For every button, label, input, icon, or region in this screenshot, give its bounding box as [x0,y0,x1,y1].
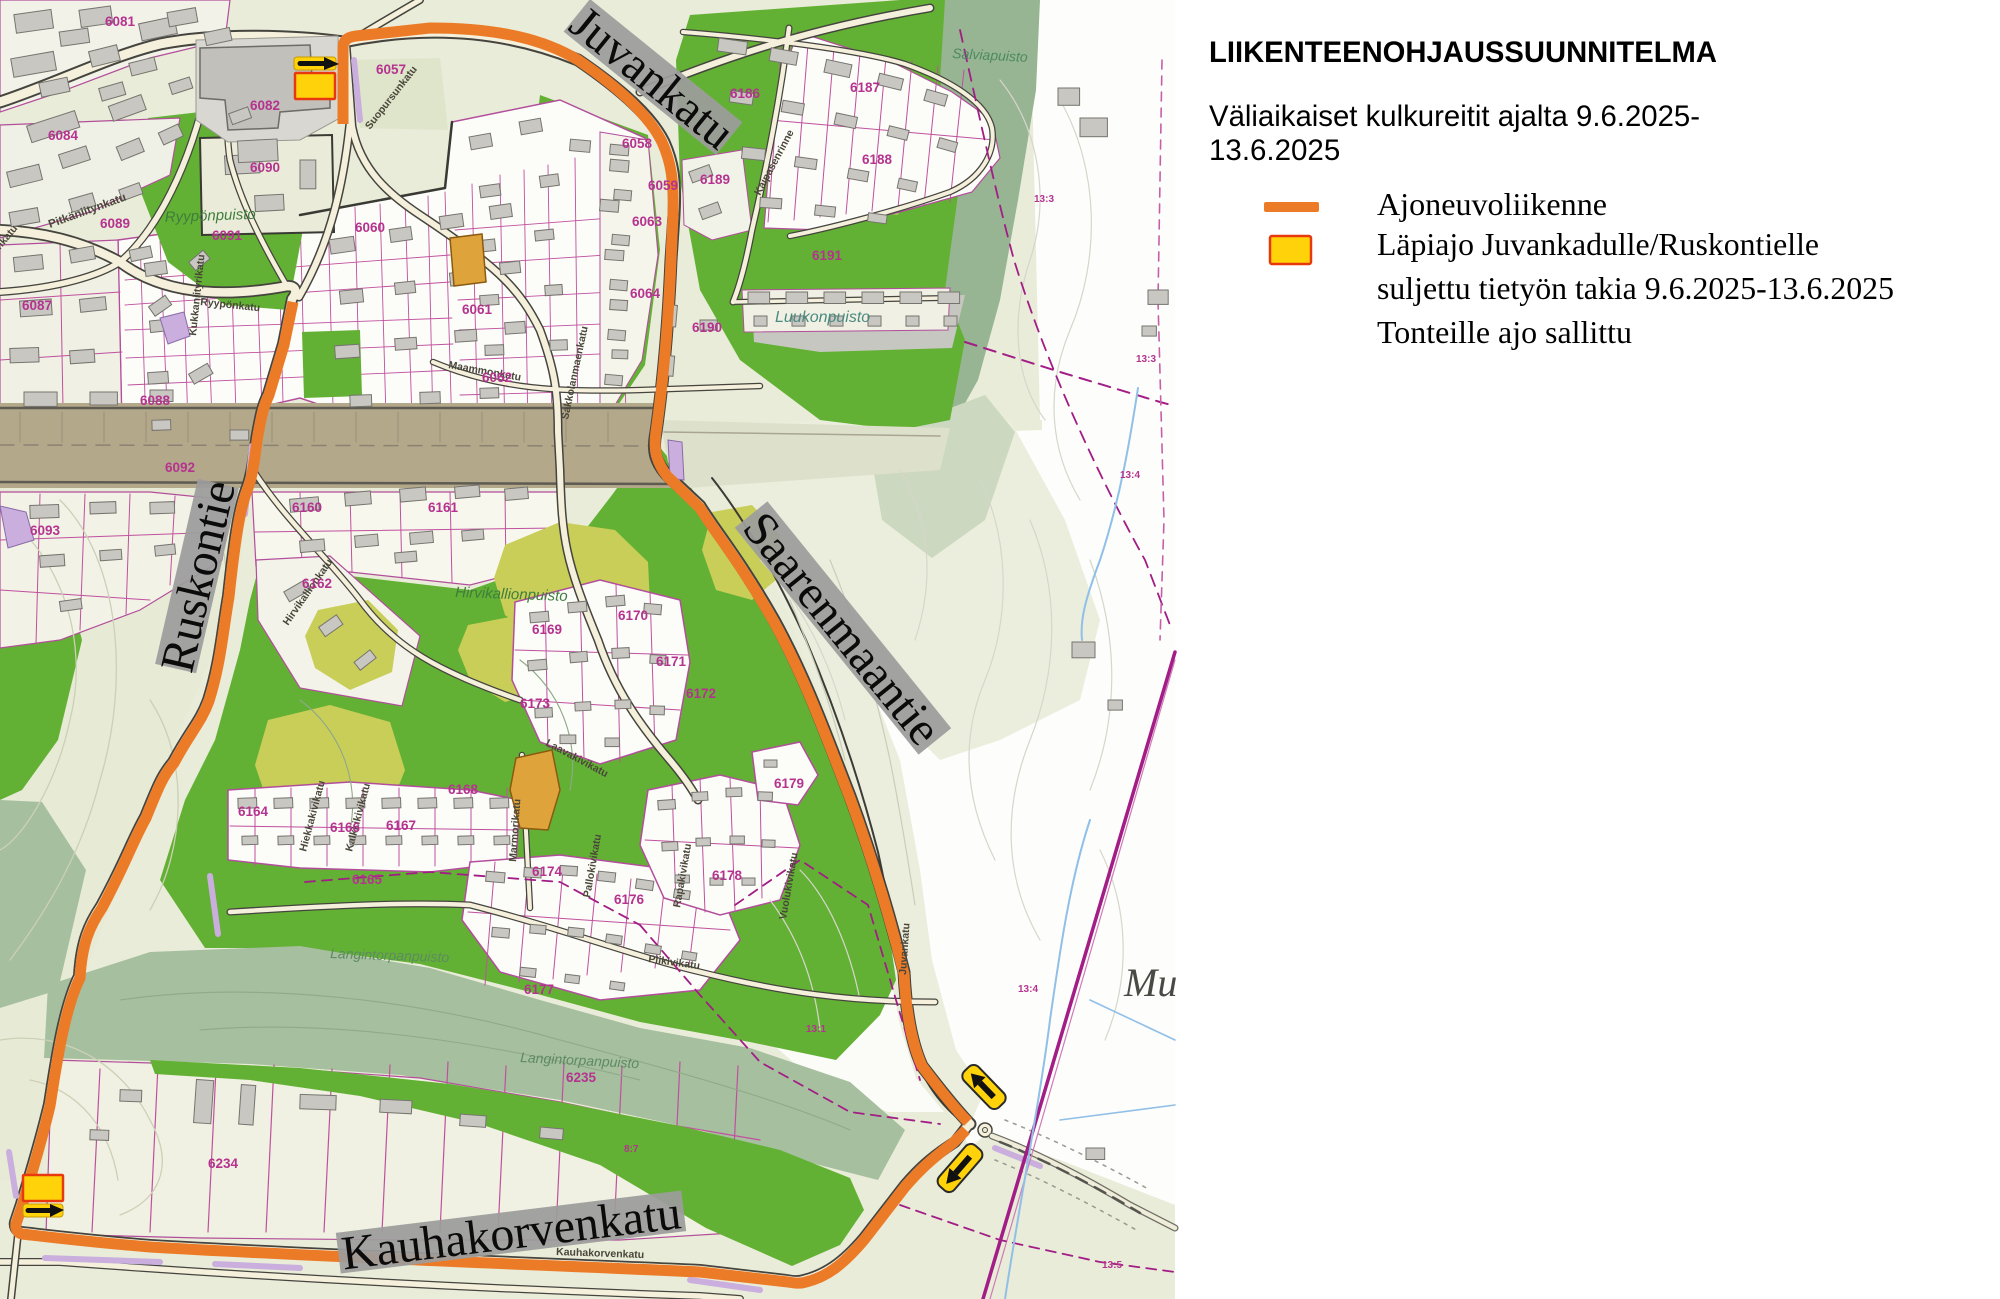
svg-text:6057: 6057 [376,62,406,77]
svg-text:6092: 6092 [165,460,195,475]
svg-text:6235: 6235 [566,1070,597,1085]
svg-text:13:1: 13:1 [806,1024,826,1035]
svg-text:6064: 6064 [630,286,661,301]
svg-text:6087: 6087 [22,298,52,313]
svg-text:Ryypönpuisto: Ryypönpuisto [165,206,256,226]
svg-text:Ajoneuvoliikenne: Ajoneuvoliikenne [1377,186,1607,222]
svg-text:6058: 6058 [622,136,653,151]
svg-text:6168: 6168 [448,782,479,797]
svg-text:6166: 6166 [330,820,361,835]
svg-text:Mu: Mu [1123,960,1177,1005]
svg-text:6088: 6088 [140,393,171,408]
svg-text:6171: 6171 [656,654,687,669]
svg-text:6176: 6176 [614,892,645,907]
svg-text:6162: 6162 [302,576,332,591]
svg-text:Läpiajo Juvankadulle/Ruskontie: Läpiajo Juvankadulle/Ruskontielle [1377,226,1819,262]
svg-text:13:3: 13:3 [1034,194,1054,205]
svg-text:Väliaikaiset kulkureitit ajalt: Väliaikaiset kulkureitit ajalta 9.6.2025… [1209,100,1700,133]
svg-text:6091: 6091 [212,228,243,243]
svg-text:6164: 6164 [238,804,269,819]
svg-text:6172: 6172 [686,686,716,701]
svg-text:6059: 6059 [648,178,678,193]
svg-text:6093: 6093 [30,523,61,538]
svg-text:13:4: 13:4 [1120,470,1140,481]
svg-text:6167: 6167 [386,818,416,833]
svg-text:6177: 6177 [524,982,554,997]
svg-text:13:3: 13:3 [1136,354,1156,365]
svg-text:6082: 6082 [250,98,280,113]
svg-text:6061: 6061 [462,302,493,317]
svg-text:6186: 6186 [730,86,761,101]
svg-text:6161: 6161 [428,500,459,515]
svg-text:6169: 6169 [532,622,562,637]
svg-text:6189: 6189 [700,172,730,187]
svg-text:6090: 6090 [250,160,280,175]
svg-text:13:5: 13:5 [1102,1260,1122,1271]
svg-text:suljettu tietyön takia 9.6.202: suljettu tietyön takia 9.6.2025-13.6.202… [1377,270,1894,306]
svg-text:6081: 6081 [105,14,136,29]
svg-text:6173: 6173 [520,696,551,711]
svg-text:6187: 6187 [850,80,880,95]
svg-text:13:4: 13:4 [1018,984,1038,995]
svg-text:6178: 6178 [712,868,743,883]
svg-text:6165: 6165 [352,872,383,887]
svg-text:6089: 6089 [100,216,130,231]
svg-text:6084: 6084 [48,128,79,143]
svg-text:6191: 6191 [812,248,843,263]
svg-text:6234: 6234 [208,1156,239,1171]
svg-text:6160: 6160 [292,500,322,515]
svg-text:6174: 6174 [532,864,563,879]
svg-text:13.6.2025: 13.6.2025 [1209,134,1340,167]
svg-text:6060: 6060 [355,220,385,235]
svg-text:6190: 6190 [692,320,722,335]
svg-text:6188: 6188 [862,152,893,167]
svg-text:6170: 6170 [618,608,648,623]
svg-text:Luukonpuisto: Luukonpuisto [775,309,870,326]
svg-text:6062: 6062 [482,370,512,385]
svg-text:8:7: 8:7 [624,1144,639,1155]
svg-text:Tonteille ajo sallittu: Tonteille ajo sallittu [1377,314,1632,350]
svg-text:LIIKENTEENOHJAUSSUUNNITELMA: LIIKENTEENOHJAUSSUUNNITELMA [1209,36,1717,69]
svg-text:6063: 6063 [632,214,663,229]
svg-text:6179: 6179 [774,776,804,791]
